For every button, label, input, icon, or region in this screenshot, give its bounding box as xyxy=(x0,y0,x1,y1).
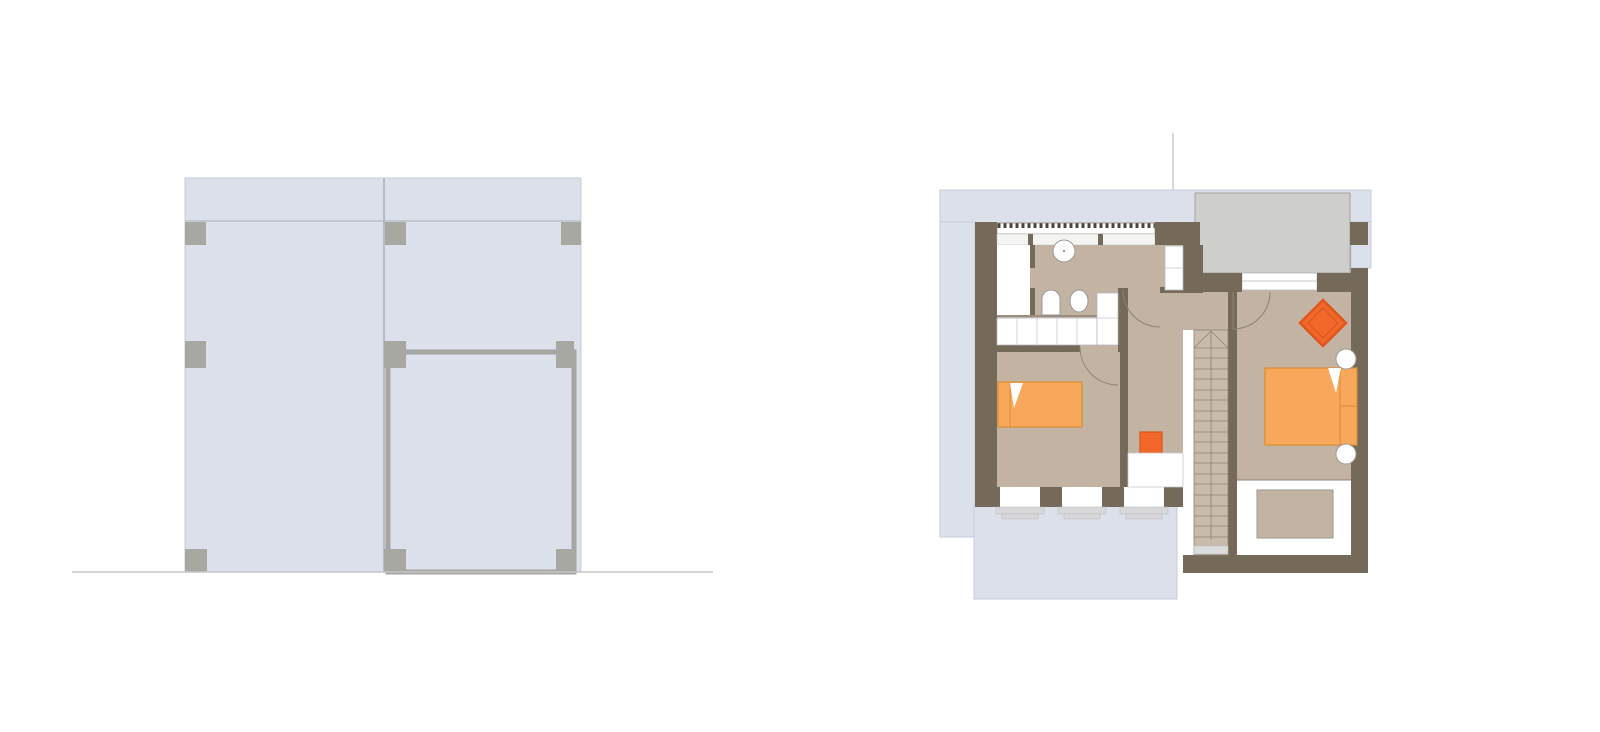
connector-square-top-left xyxy=(185,222,206,245)
connector-square-bottom-center xyxy=(384,549,406,572)
facade-body xyxy=(185,178,581,572)
stair-side-strip xyxy=(1183,330,1194,555)
architectural-drawing-sheet xyxy=(0,0,1600,732)
connector-square-mid-left xyxy=(185,341,206,368)
connector-square-bottom-left xyxy=(185,549,207,572)
cabinet-row xyxy=(997,318,1097,345)
roof-left-column xyxy=(940,222,975,537)
stair-bottom-tread xyxy=(1194,546,1228,554)
wall-top-right-pier xyxy=(1155,222,1200,245)
sill-stub-1 xyxy=(1028,234,1033,245)
wall-bath-divider-a xyxy=(1030,245,1035,268)
wall-left xyxy=(975,245,997,487)
toilet-1 xyxy=(1042,290,1060,315)
connector-square-top-mid xyxy=(385,222,406,245)
desk xyxy=(1128,453,1183,487)
wall-bedroom1-right xyxy=(1120,345,1128,487)
wall-shaft-right xyxy=(1118,288,1128,345)
connector-square-bottom-right xyxy=(556,549,574,572)
bed-single xyxy=(998,382,1082,427)
wall-top-sill xyxy=(997,234,1155,245)
window-2-sill-step xyxy=(1064,514,1100,519)
nightstand-1 xyxy=(1336,349,1356,369)
window-2-sill xyxy=(1058,507,1106,514)
window-1-sill-step xyxy=(1002,514,1038,519)
wall-stair-right xyxy=(1228,290,1237,555)
sink-drain-dot xyxy=(1063,250,1065,252)
window-2 xyxy=(1062,487,1102,507)
nightstand-2 xyxy=(1336,444,1356,464)
wall-bath-divider-b xyxy=(1030,288,1035,315)
window-3 xyxy=(1124,487,1164,507)
connector-square-mid-center xyxy=(384,341,406,368)
window-3-sill xyxy=(1120,507,1168,514)
connector-square-mid-right xyxy=(556,341,574,368)
elevation-drawing xyxy=(72,178,713,572)
shaft-1 xyxy=(1097,293,1118,345)
wall-top-left-pier xyxy=(975,222,997,245)
wall-bottom-under-stairs xyxy=(1183,555,1368,573)
window-1-sill xyxy=(996,507,1044,514)
closet-room xyxy=(997,245,1030,315)
connector-square-top-right xyxy=(561,222,581,245)
loggia-rug xyxy=(1257,490,1333,538)
wall-bedroom1-top-a xyxy=(975,345,1080,352)
stool xyxy=(1140,432,1162,454)
wall-top-hatch xyxy=(997,223,1155,234)
sill-stub-2 xyxy=(1098,234,1103,245)
window-1 xyxy=(1000,487,1040,507)
window-3-sill-step xyxy=(1126,514,1162,519)
toilet-2 xyxy=(1070,290,1088,312)
wall-right-pier-top xyxy=(1350,222,1368,245)
drawing-svg xyxy=(0,0,1600,732)
wall-under-terrace-left xyxy=(1200,273,1242,292)
floor-plan-drawing xyxy=(940,133,1371,599)
terrace xyxy=(1195,193,1350,273)
